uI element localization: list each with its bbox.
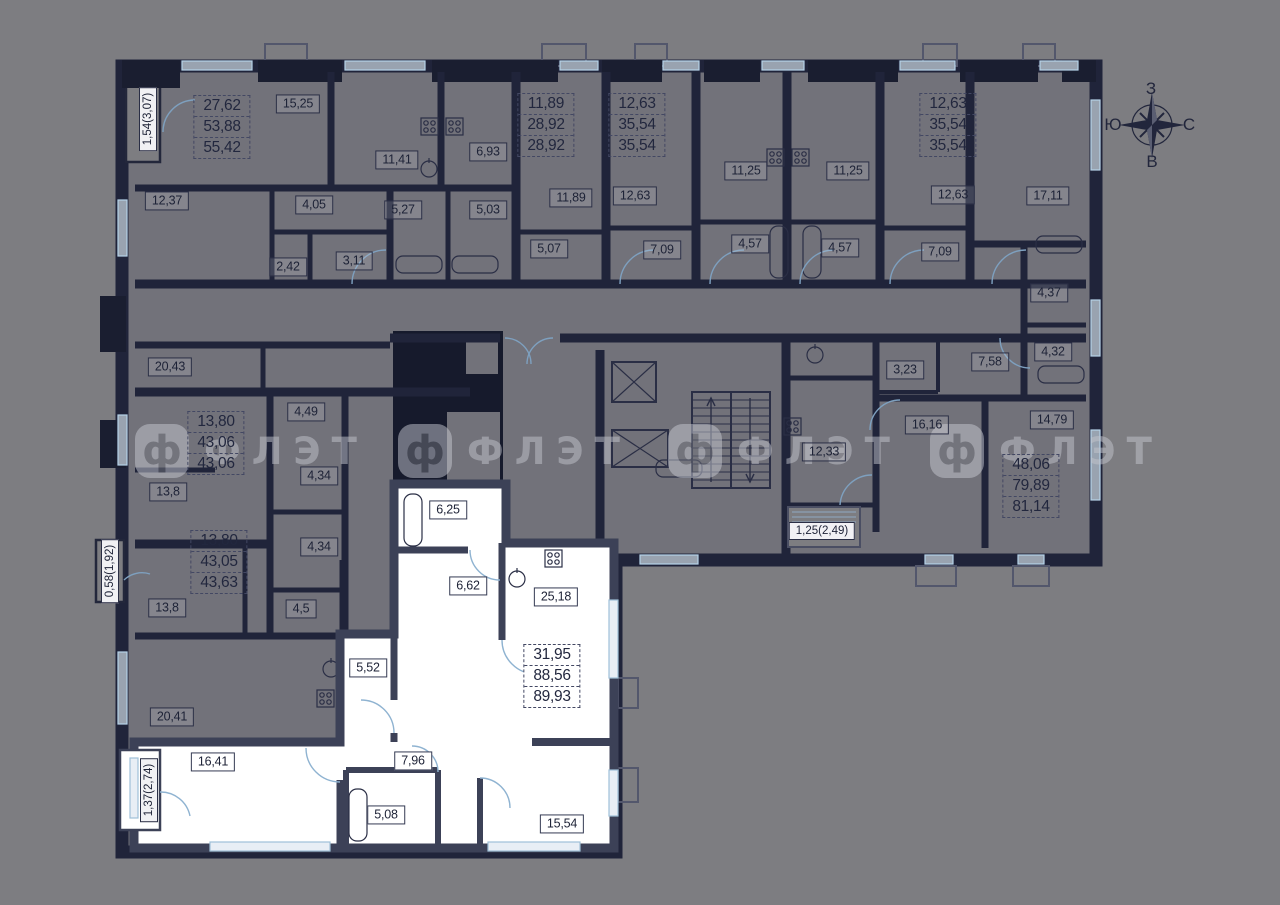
room-area-label: 12,63 [613,186,657,205]
room-area-label: 7,96 [394,751,432,770]
room-area-label: 3,11 [336,251,373,270]
compass-south-label: Ю [1104,115,1121,135]
room-area-label: 25,18 [534,587,578,606]
room-area-label: 7,58 [971,352,1009,371]
room-area-label: 5,52 [349,658,387,677]
room-area-label: 5,27 [384,200,422,219]
room-area-label: 12,33 [802,442,846,461]
room-area-label: 6,93 [469,142,507,161]
room-area-label: 15,25 [276,94,320,113]
room-area-label: 4,57 [821,238,859,257]
room-area-label: 4,57 [731,234,769,253]
room-area-label: 15,54 [540,814,584,833]
room-area-label: 11,41 [375,150,418,169]
room-area-label: 4,05 [295,195,333,214]
room-area-label: 12,37 [145,191,189,210]
floor-plan-page: ф ФЛЭТ ф ФЛЭТ ф ФЛЭТ ф ФЛЭТ З Ю С В 27,6… [0,0,1280,905]
room-area-label: 4,37 [1030,283,1068,302]
apartment-summary[interactable]: 13,80 43,06 43,06 [187,411,244,475]
room-area-label: 16,16 [905,415,949,434]
room-area-label: 4,49 [287,402,325,421]
room-area-label: 2,42 [269,257,307,276]
balcony-dimension-label: 1,54(3,07) [139,87,157,151]
room-area-label: 11,25 [826,161,869,180]
room-area-label: 13,8 [148,598,186,617]
room-area-label: 17,11 [1026,186,1069,205]
balcony-dimension-label: 1,25(2,49) [789,522,855,540]
room-area-label: 11,25 [724,161,767,180]
service-shafts [393,331,503,484]
compass-east-label: В [1146,152,1157,172]
room-area-label: 4,34 [300,537,338,556]
room-area-label: 4,5 [286,599,317,618]
room-area-label: 5,03 [469,200,507,219]
apartment-summary[interactable]: 48,06 79,89 81,14 [1002,454,1059,518]
apartment-summary[interactable]: 13,80 43,05 43,63 [190,530,247,594]
balcony-dimension-label: 0,58(1,92) [101,539,119,603]
room-area-label: 4,34 [300,466,338,485]
room-area-label: 7,09 [643,240,681,259]
room-area-label: 20,41 [150,707,194,726]
room-area-label: 20,43 [148,357,192,376]
staircase [692,392,770,488]
apartment-summary-selected[interactable]: 31,95 88,56 89,93 [523,644,580,708]
compass-north-label: С [1183,115,1195,135]
room-area-label: 11,89 [549,188,592,207]
room-area-label: 3,23 [886,360,924,379]
apartment-summary[interactable]: 11,89 28,92 28,92 [517,93,574,157]
apartment-summary[interactable]: 27,62 53,88 55,42 [193,95,250,159]
apartment-summary[interactable]: 12,63 35,54 35,54 [919,93,976,157]
room-area-label: 7,09 [921,242,959,261]
balcony-dimension-label: 1,37(2,74) [140,758,158,822]
room-area-label: 13,8 [149,482,187,501]
room-area-label: 6,62 [449,576,487,595]
room-area-label: 6,25 [429,500,467,519]
apartment-summary[interactable]: 12,63 35,54 35,54 [608,93,665,157]
room-area-label: 4,32 [1034,342,1072,361]
room-area-label: 14,79 [1030,410,1074,429]
room-area-label: 5,08 [367,805,405,824]
room-area-label: 12,63 [931,185,975,204]
compass-west-label: З [1146,79,1156,99]
room-area-label: 16,41 [191,752,235,771]
room-area-label: 5,07 [530,239,568,258]
